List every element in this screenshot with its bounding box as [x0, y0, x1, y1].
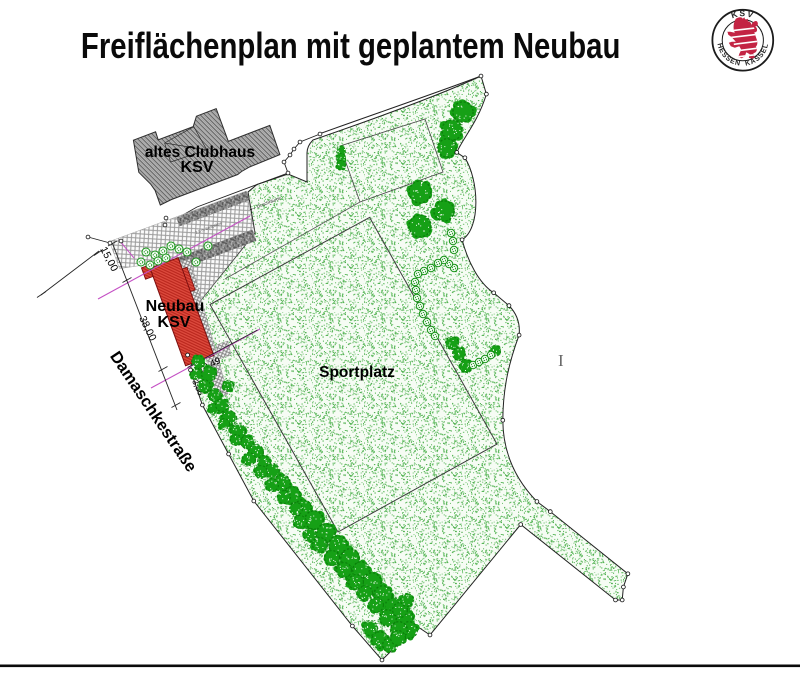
svg-text:Freiflächenplan mit geplantem: Freiflächenplan mit geplantem Neubau	[81, 25, 620, 66]
svg-text:Sportplatz: Sportplatz	[319, 364, 395, 381]
svg-text:KSV: KSV	[158, 314, 191, 331]
svg-text:Neubau: Neubau	[146, 298, 205, 315]
svg-text:I: I	[558, 351, 564, 370]
svg-text:KSV: KSV	[181, 159, 214, 176]
